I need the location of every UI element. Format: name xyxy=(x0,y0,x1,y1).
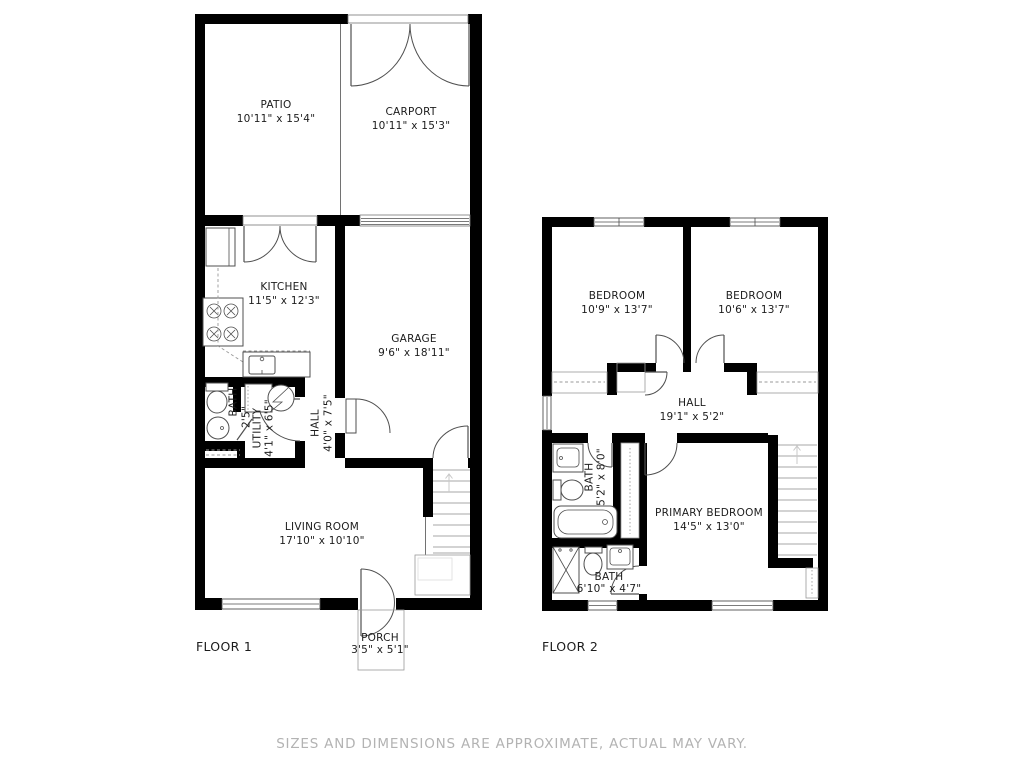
bedroom-left-dims: 10'9" x 13'7" xyxy=(581,304,653,316)
floor2-label: FLOOR 2 xyxy=(542,639,598,654)
vanity-sink-icon xyxy=(553,444,583,472)
floorplan-svg: PATIO 10'11" x 15'4" CARPORT 10'11" x 15… xyxy=(0,0,1024,768)
garage-room-dims: 9'6" x 18'11" xyxy=(378,347,450,359)
bedroom-left-label: BEDROOM xyxy=(589,290,646,302)
floor2-plan: BEDROOM 10'9" x 13'7" BEDROOM 10'6" x 13… xyxy=(542,217,828,654)
floor1-label: FLOOR 1 xyxy=(196,639,252,654)
shower-icon xyxy=(553,547,579,593)
bath-upper-label: BATH xyxy=(584,463,596,492)
primary-bedroom-label: PRIMARY BEDROOM xyxy=(655,507,763,519)
living-room-label: LIVING ROOM xyxy=(285,521,359,533)
carport-room-dims: 10'11" x 15'3" xyxy=(372,120,451,132)
toilet-icon xyxy=(553,480,583,500)
stairs-up-arrow-icon xyxy=(446,474,453,492)
porch-room-label: PORCH xyxy=(361,632,399,644)
patio-room-label: PATIO xyxy=(260,99,291,111)
bathtub-icon xyxy=(554,506,617,538)
vanity-sink-icon xyxy=(607,545,633,569)
living-room-dims: 17'10" x 10'10" xyxy=(279,535,365,547)
hall2-room-dims: 19'1" x 5'2" xyxy=(660,411,725,423)
stairs-up-arrow-icon xyxy=(794,446,801,464)
hall2-room-label: HALL xyxy=(678,397,706,409)
round-sink-icon xyxy=(207,417,229,439)
bath-upper-dims: 5'2" x 8'0" xyxy=(596,448,608,506)
toilet-icon xyxy=(206,383,228,413)
primary-bedroom-dims: 14'5" x 13'0" xyxy=(673,521,745,533)
utility-room-dims: 4'1" x 6'5" xyxy=(264,399,276,457)
utility-room-label: UTILITY xyxy=(252,407,264,448)
bath-lower-dims: 6'10" x 4'7" xyxy=(577,583,642,595)
bedroom-right-label: BEDROOM xyxy=(726,290,783,302)
floor1-windows xyxy=(222,599,320,609)
kitchen-room-dims: 11'5" x 12'3" xyxy=(248,295,320,307)
stove-icon xyxy=(203,298,243,346)
carport-room-label: CARPORT xyxy=(385,106,436,118)
kitchen-room-label: KITCHEN xyxy=(260,281,307,293)
bedroom-right-dims: 10'6" x 13'7" xyxy=(718,304,790,316)
hall1-room-dims: 4'0" x 7'5" xyxy=(323,394,335,452)
hall1-room-label: HALL xyxy=(310,409,322,437)
porch-room-dims: 3'5" x 5'1" xyxy=(351,644,409,656)
bath-lower-label: BATH xyxy=(595,571,624,583)
stairs-floor2 xyxy=(778,445,817,555)
patio-room-dims: 10'11" x 15'4" xyxy=(237,113,316,125)
bath-room-label: BATH xyxy=(228,388,240,417)
fridge-icon xyxy=(206,228,235,266)
garage-room-label: GARAGE xyxy=(391,333,436,345)
floor1-plan: PATIO 10'11" x 15'4" CARPORT 10'11" x 15… xyxy=(195,14,482,670)
kitchen-sink-icon xyxy=(249,356,275,374)
disclaimer-text: SIZES AND DIMENSIONS ARE APPROXIMATE, AC… xyxy=(276,736,748,752)
floorplan-page: PATIO 10'11" x 15'4" CARPORT 10'11" x 15… xyxy=(0,0,1024,768)
